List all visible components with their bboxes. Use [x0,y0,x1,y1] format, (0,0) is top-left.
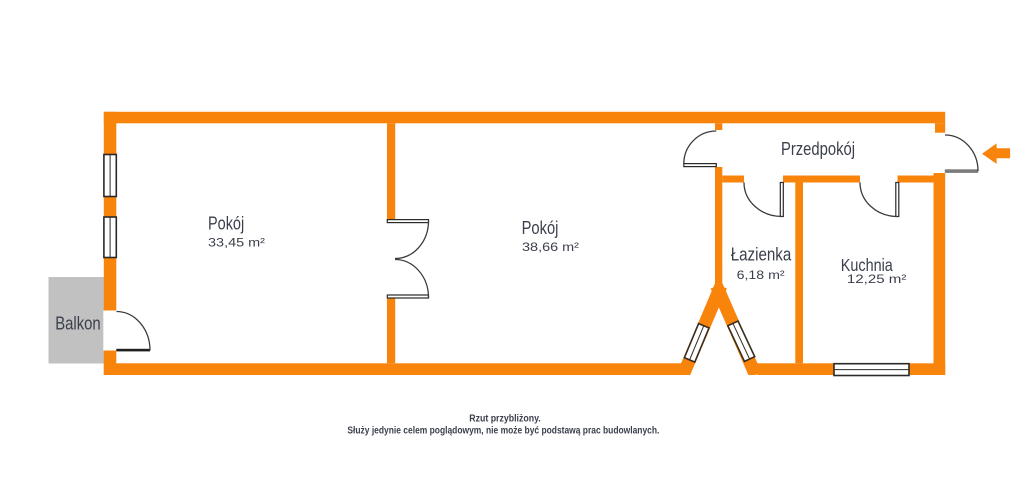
svg-text:12,25 m²: 12,25 m² [847,272,907,286]
svg-text:Rzut przybliżony.: Rzut przybliżony. [469,413,541,424]
svg-text:33,45 m²: 33,45 m² [208,236,265,250]
svg-text:38,66 m²: 38,66 m² [522,240,579,254]
svg-text:Pokój: Pokój [208,213,244,234]
svg-text:Służy jedynie celem poglądowym: Służy jedynie celem poglądowym, nie może… [347,425,659,436]
svg-text:6,18 m²: 6,18 m² [737,268,785,282]
svg-text:Pokój: Pokój [522,217,559,238]
svg-text:Balkon: Balkon [55,313,100,334]
svg-text:Łazienka: Łazienka [731,243,792,264]
svg-text:Przedpokój: Przedpokój [781,138,855,159]
